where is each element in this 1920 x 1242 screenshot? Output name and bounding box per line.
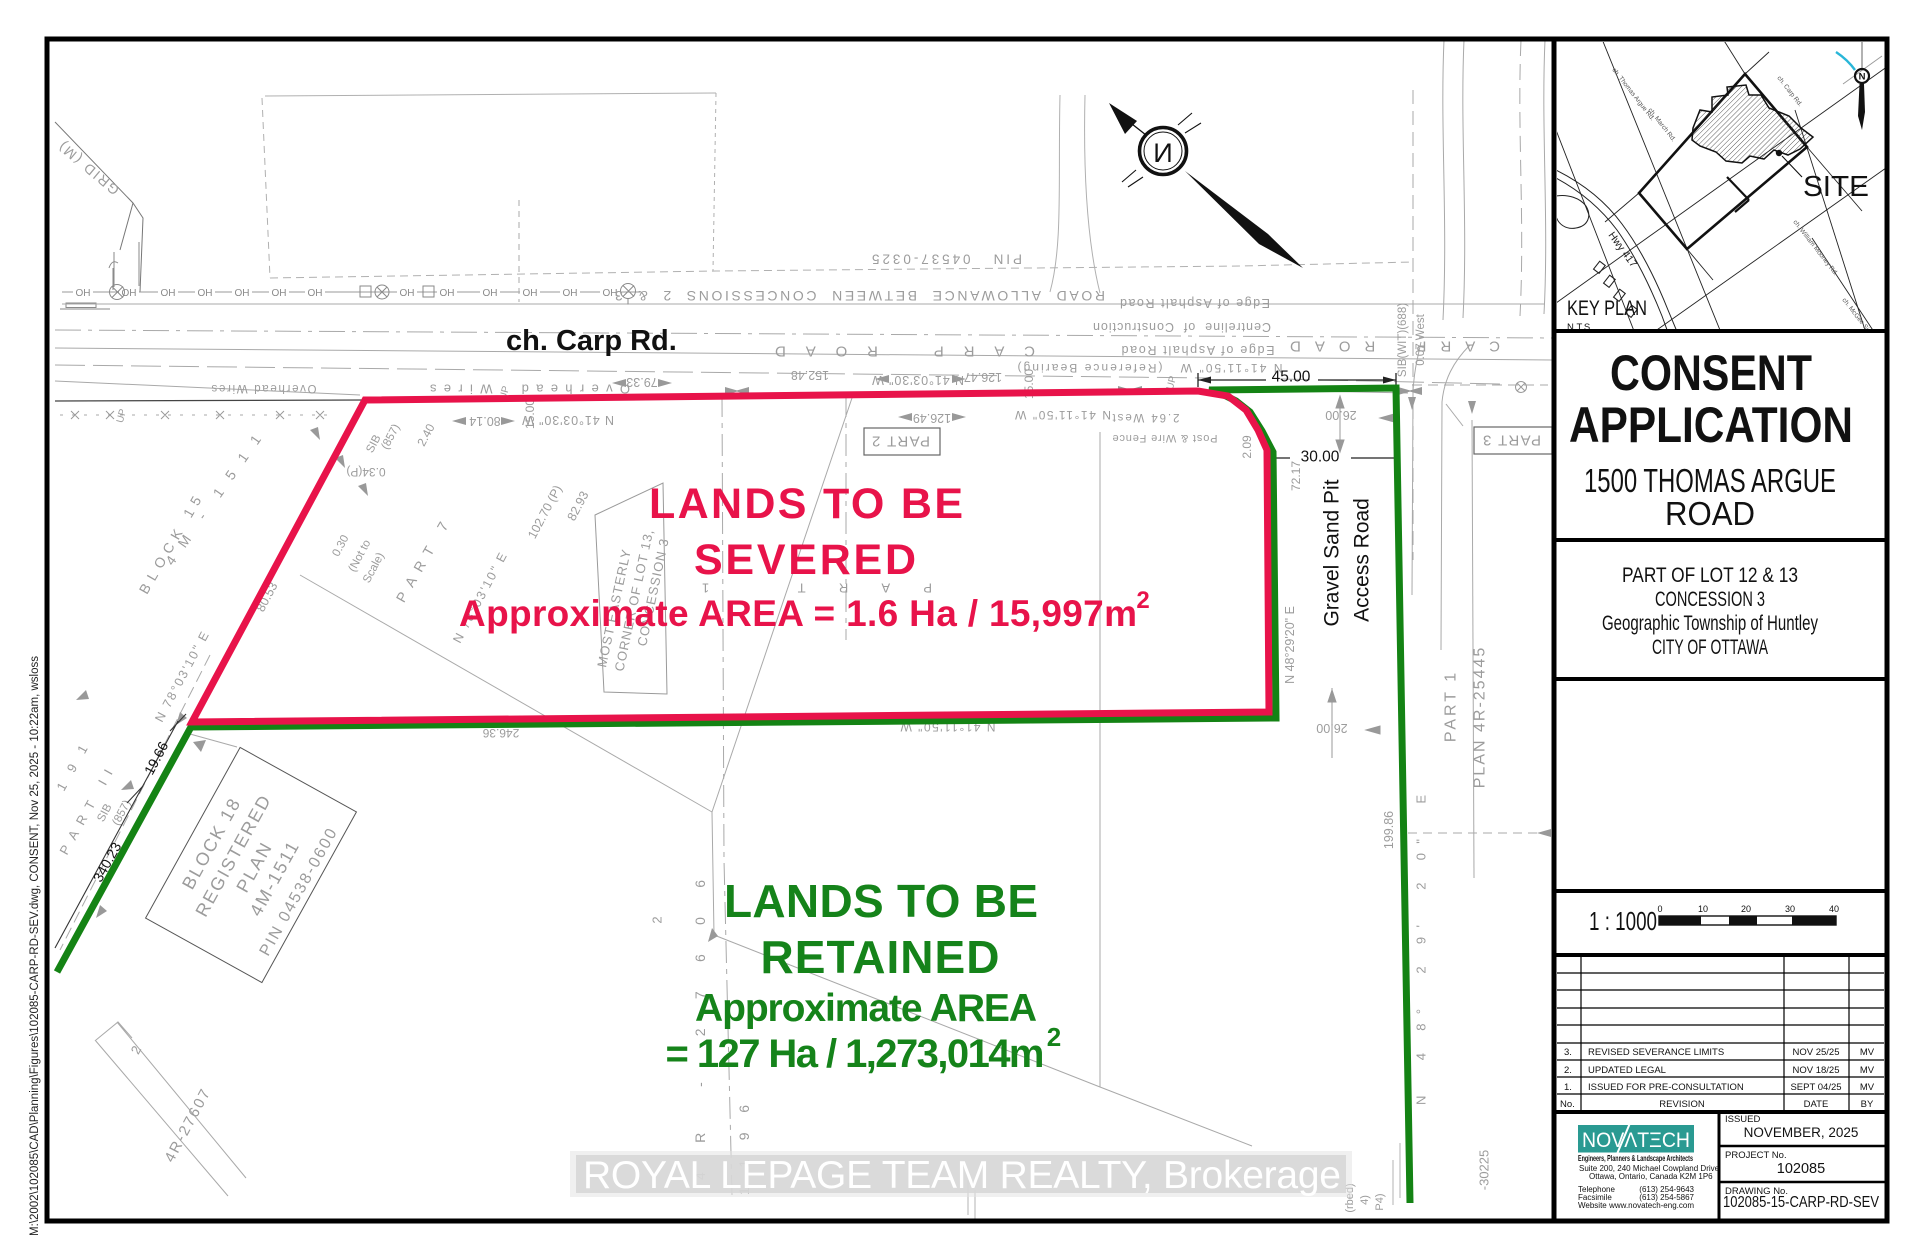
svg-text:PROJECT No.: PROJECT No. (1725, 1150, 1787, 1161)
svg-text:DATE: DATE (1804, 1099, 1829, 1110)
svg-text:P4): P4) (1374, 1193, 1386, 1210)
svg-text:MV: MV (1860, 1082, 1875, 1093)
svg-text:4): 4) (1359, 1195, 1371, 1205)
svg-text:3.: 3. (1564, 1047, 1572, 1058)
svg-text:102085: 102085 (1777, 1161, 1825, 1177)
svg-text:Website: Website (1578, 1201, 1607, 1210)
svg-text:CONCESSION 3: CONCESSION 3 (1655, 588, 1765, 611)
svg-text:N 41°11'50" W: N 41°11'50" W (1014, 408, 1111, 422)
svg-text:PART 3: PART 3 (1483, 432, 1541, 449)
svg-text:Overhead Wires: Overhead Wires (211, 382, 316, 394)
svg-text:Post & Wire Fence: Post & Wire Fence (1113, 432, 1218, 444)
svg-text:SITE: SITE (1803, 171, 1869, 203)
svg-text:BY: BY (1861, 1099, 1874, 1110)
svg-text:152.48: 152.48 (791, 368, 829, 382)
svg-text:REVISED SEVERANCE LIMITS: REVISED SEVERANCE LIMITS (1588, 1047, 1724, 1058)
svg-text:15.00: 15.00 (523, 399, 537, 429)
svg-text:ISSUED FOR PRE-CONSULTATION: ISSUED FOR PRE-CONSULTATION (1588, 1082, 1744, 1093)
svg-text:CONSENT: CONSENT (1610, 345, 1812, 401)
svg-text:NOVΛTΞCH: NOVΛTΞCH (1582, 1129, 1690, 1152)
svg-text:N: N (1153, 138, 1173, 168)
svg-text:SEPT 04/25: SEPT 04/25 (1790, 1082, 1841, 1093)
svg-text:UPDATED LEGAL: UPDATED LEGAL (1588, 1065, 1666, 1076)
svg-text:= 127 Ha / 1,273,014m: = 127 Ha / 1,273,014m (666, 1032, 1045, 1076)
svg-text:OH: OH (563, 288, 578, 299)
svg-text:No.: No. (1560, 1099, 1575, 1110)
svg-text:10: 10 (1698, 904, 1708, 914)
svg-text:OH: OH (161, 288, 176, 299)
svg-text:0: 0 (1657, 904, 1662, 914)
svg-text:30.00: 30.00 (1301, 449, 1340, 466)
svg-text:RETAINED: RETAINED (761, 931, 1000, 983)
svg-text:NOV 18/25: NOV 18/25 (1793, 1065, 1840, 1076)
svg-text:OH: OH (483, 288, 498, 299)
svg-text:80.14: 80.14 (469, 414, 500, 428)
svg-text:0.34(P): 0.34(P) (346, 465, 385, 479)
svg-text:OH: OH (198, 288, 213, 299)
svg-text:79.33: 79.33 (626, 375, 657, 389)
svg-text:ISSUED: ISSUED (1725, 1114, 1761, 1125)
svg-text:2.: 2. (1564, 1065, 1572, 1076)
svg-text:PART 2: PART 2 (872, 433, 930, 450)
svg-text:LANDS TO BE: LANDS TO BE (649, 480, 963, 528)
svg-text:2: 2 (650, 916, 665, 923)
svg-text:ch. Carp Rd.: ch. Carp Rd. (506, 325, 677, 357)
svg-text:Approximate AREA: Approximate AREA (695, 987, 1037, 1030)
svg-text:OH: OH (440, 288, 455, 299)
svg-text:1.: 1. (1564, 1082, 1572, 1093)
svg-text:PLAN 4R-25445: PLAN 4R-25445 (1472, 646, 1489, 789)
svg-text:N 41°03'30" W: N 41°03'30" W (872, 373, 964, 387)
svg-text:Engineers, Planners & Landscap: Engineers, Planners & Landscape Architec… (1578, 1153, 1693, 1163)
svg-text:2: 2 (1136, 587, 1149, 614)
svg-text:246.36: 246.36 (482, 726, 519, 740)
svg-text:www.novatech-eng.com: www.novatech-eng.com (1608, 1201, 1694, 1210)
svg-text:N: N (1859, 72, 1866, 83)
svg-text:REVISION: REVISION (1659, 1099, 1705, 1110)
svg-text:1500 THOMAS ARGUE: 1500 THOMAS ARGUE (1584, 462, 1836, 499)
svg-text:0.07 West: 0.07 West (1415, 313, 1427, 365)
svg-text:PIN 04537-0325: PIN 04537-0325 (872, 252, 1022, 267)
svg-text:OH: OH (76, 288, 91, 299)
svg-text:-30225: -30225 (1477, 1150, 1492, 1190)
svg-text:MV: MV (1860, 1047, 1875, 1058)
svg-text:ROYAL LEPAGE TEAM REALTY, Brok: ROYAL LEPAGE TEAM REALTY, Brokerage (583, 1154, 1341, 1197)
svg-text:OH: OH (400, 288, 415, 299)
svg-text:Edge of Asphalt Road: Edge of Asphalt Road (1120, 296, 1270, 310)
svg-text:APPLICATION: APPLICATION (1569, 397, 1853, 453)
svg-text:NOVEMBER, 2025: NOVEMBER, 2025 (1744, 1125, 1859, 1140)
svg-text:45.00: 45.00 (1272, 369, 1311, 386)
svg-text:Centreline of Construction: Centreline of Construction (1093, 320, 1271, 334)
svg-text:NOV 25/25: NOV 25/25 (1793, 1047, 1840, 1058)
svg-text:Gravel Sand Pit: Gravel Sand Pit (1321, 479, 1344, 626)
svg-text:Access Road: Access Road (1351, 498, 1374, 622)
svg-text:1 : 1000: 1 : 1000 (1589, 906, 1657, 936)
svg-text:PART 1: PART 1 (1443, 670, 1460, 742)
svg-text:26.00: 26.00 (1325, 408, 1356, 422)
svg-text:CITY OF OTTAWA: CITY OF OTTAWA (1652, 636, 1768, 659)
svg-text:N 41°11'50" W (Reference Bea: N 41°11'50" W (Reference Bearing) (1018, 361, 1283, 375)
svg-text:MV: MV (1860, 1065, 1875, 1076)
svg-text:OH: OH (308, 288, 323, 299)
svg-text:40: 40 (1829, 904, 1839, 914)
svg-text:Edge of Asphalt Road: Edge of Asphalt Road (1121, 343, 1274, 357)
svg-text:30: 30 (1785, 904, 1795, 914)
svg-text:PART OF LOT 12 & 13: PART OF LOT 12 & 13 (1622, 564, 1798, 587)
svg-text:2.09: 2.09 (1240, 435, 1254, 459)
svg-text:OH: OH (235, 288, 250, 299)
svg-text:20: 20 (1741, 904, 1751, 914)
svg-text:M:\2002\102085\CAD\Planning\Fi: M:\2002\102085\CAD\Planning\Figures\1020… (29, 656, 41, 1236)
svg-text:OH: OH (272, 288, 287, 299)
svg-text:102085-15-CARP-RD-SEV: 102085-15-CARP-RD-SEV (1723, 1194, 1879, 1211)
svg-text:OH: OH (523, 288, 538, 299)
svg-text:N 48°29'20" E: N 48°29'20" E (1283, 606, 1297, 684)
svg-text:LANDS TO BE: LANDS TO BE (724, 875, 1038, 927)
svg-text:2: 2 (1047, 1022, 1061, 1052)
svg-text:KEY PLAN: KEY PLAN (1567, 297, 1647, 320)
svg-text:199.86: 199.86 (1382, 811, 1396, 849)
svg-text:ROAD: ROAD (1665, 495, 1755, 532)
svg-text:Geographic Township of Huntley: Geographic Township of Huntley (1602, 612, 1818, 635)
svg-text:126.49: 126.49 (913, 411, 951, 425)
svg-text:Ottawa, Ontario, Canada K2M 1P: Ottawa, Ontario, Canada K2M 1P6 (1589, 1172, 1713, 1181)
svg-text:Approximate AREA = 1.6 Ha / 15: Approximate AREA = 1.6 Ha / 15,997m (459, 593, 1137, 634)
svg-text:26.00: 26.00 (1316, 721, 1347, 735)
svg-text:126.47: 126.47 (964, 370, 1002, 384)
svg-text:SIB(WIT)(688): SIB(WIT)(688) (1397, 303, 1409, 377)
